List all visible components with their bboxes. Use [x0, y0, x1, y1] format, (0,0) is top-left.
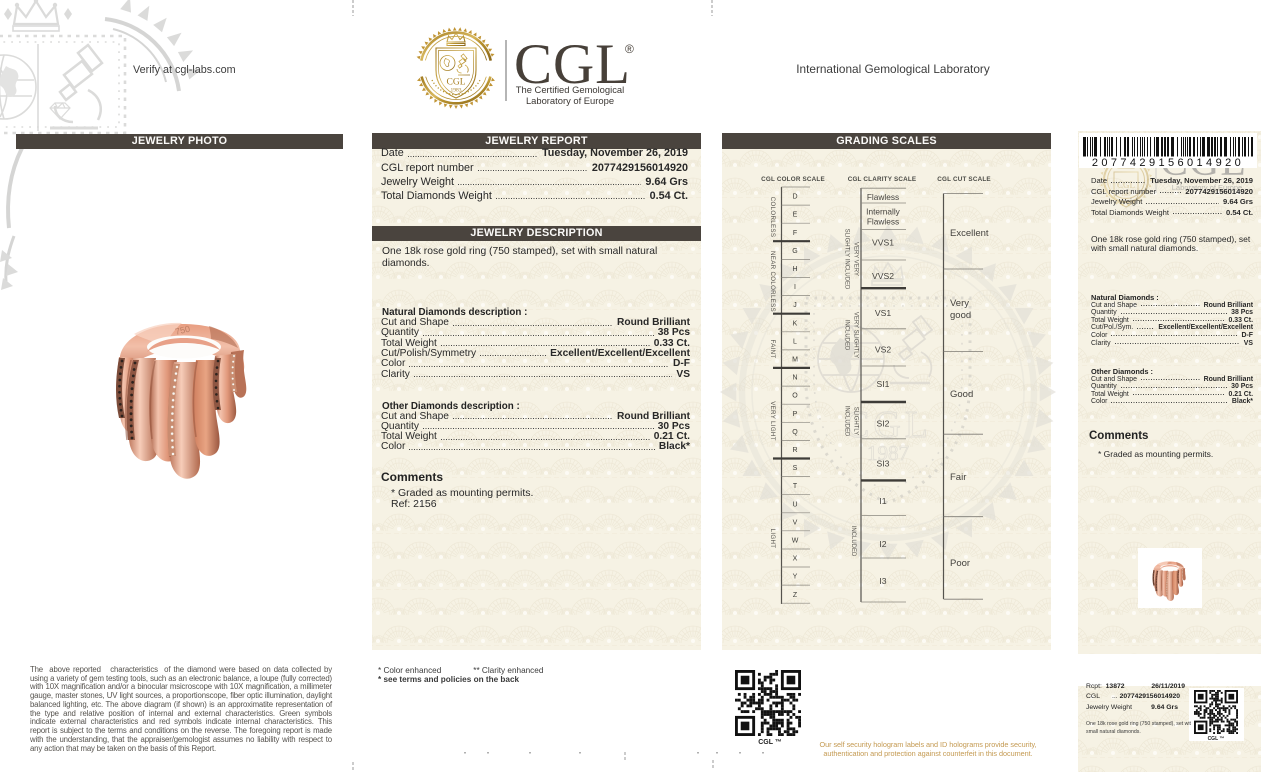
svg-text:CGL CLARITY SCALE: CGL CLARITY SCALE: [848, 176, 917, 183]
svg-text:Fair: Fair: [950, 472, 966, 483]
svg-text:FAINT: FAINT: [769, 339, 776, 358]
svg-text:E: E: [793, 212, 798, 219]
svg-text:CGL ™: CGL ™: [758, 739, 782, 746]
svg-text:LIGHT: LIGHT: [769, 529, 776, 549]
svg-text:SI3: SI3: [877, 459, 890, 469]
svg-text:I1: I1: [879, 496, 886, 506]
svg-text:W: W: [792, 538, 799, 545]
svg-text:O: O: [792, 393, 798, 400]
svg-text:Y: Y: [793, 574, 798, 581]
svg-text:X: X: [793, 556, 798, 563]
svg-text:INCLUDED: INCLUDED: [850, 526, 856, 557]
svg-text:G: G: [792, 248, 797, 255]
svg-text:L: L: [793, 338, 797, 345]
svg-text:V: V: [793, 519, 798, 526]
svg-text:VERY SLIGHTLY: VERY SLIGHTLY: [853, 312, 859, 358]
svg-text:2077429156014920: 2077429156014920: [1092, 157, 1244, 169]
svg-text:SLIGHTLY INCLUDED: SLIGHTLY INCLUDED: [844, 229, 850, 290]
svg-text:SI2: SI2: [877, 419, 890, 429]
svg-text:I3: I3: [879, 576, 886, 586]
svg-text:INCLUDED: INCLUDED: [844, 320, 850, 351]
svg-text:K: K: [793, 320, 798, 327]
svg-text:U: U: [792, 501, 797, 508]
svg-text:SI1: SI1: [877, 379, 890, 389]
svg-text:H: H: [792, 266, 797, 273]
svg-text:CGL: CGL: [447, 78, 466, 88]
svg-text:Very: Very: [950, 298, 969, 309]
svg-text:CGL ™: CGL ™: [1208, 736, 1225, 742]
svg-text:VS1: VS1: [875, 308, 891, 318]
svg-text:VVS2: VVS2: [872, 271, 894, 281]
svg-text:D: D: [792, 194, 797, 201]
svg-text:Q: Q: [792, 429, 798, 436]
svg-text:I: I: [794, 284, 796, 291]
svg-text:M: M: [792, 357, 798, 364]
svg-text:CGL COLOR SCALE: CGL COLOR SCALE: [761, 176, 825, 183]
svg-text:F: F: [793, 230, 797, 237]
svg-text:T: T: [793, 483, 798, 490]
svg-text:good: good: [950, 310, 971, 321]
svg-text:VERY LIGHT: VERY LIGHT: [769, 401, 776, 441]
svg-text:SLIGHTLY: SLIGHTLY: [853, 407, 859, 436]
svg-text:Flawless: Flawless: [867, 217, 899, 227]
svg-text:VS2: VS2: [875, 344, 891, 354]
svg-text:N: N: [792, 375, 797, 382]
svg-text:Excellent: Excellent: [950, 228, 989, 239]
svg-text:1983: 1983: [451, 88, 462, 94]
svg-text:INCLUDED: INCLUDED: [844, 406, 850, 437]
svg-text:Flawless: Flawless: [867, 192, 899, 202]
svg-text:R: R: [792, 447, 797, 454]
svg-text:CGL CUT SCALE: CGL CUT SCALE: [937, 176, 991, 183]
svg-text:Internally: Internally: [866, 207, 901, 217]
svg-text:I2: I2: [879, 539, 886, 549]
svg-text:Good: Good: [950, 389, 973, 400]
svg-text:J: J: [793, 302, 797, 309]
svg-text:NEAR COLORLESS: NEAR COLORLESS: [769, 251, 776, 312]
svg-text:S: S: [793, 465, 798, 472]
svg-text:Poor: Poor: [950, 558, 970, 569]
svg-text:COLORLESS: COLORLESS: [769, 197, 776, 238]
svg-text:VERY VERY: VERY VERY: [853, 242, 859, 276]
svg-text:VVS1: VVS1: [872, 237, 894, 247]
svg-text:P: P: [793, 411, 798, 418]
svg-text:Z: Z: [793, 592, 798, 599]
